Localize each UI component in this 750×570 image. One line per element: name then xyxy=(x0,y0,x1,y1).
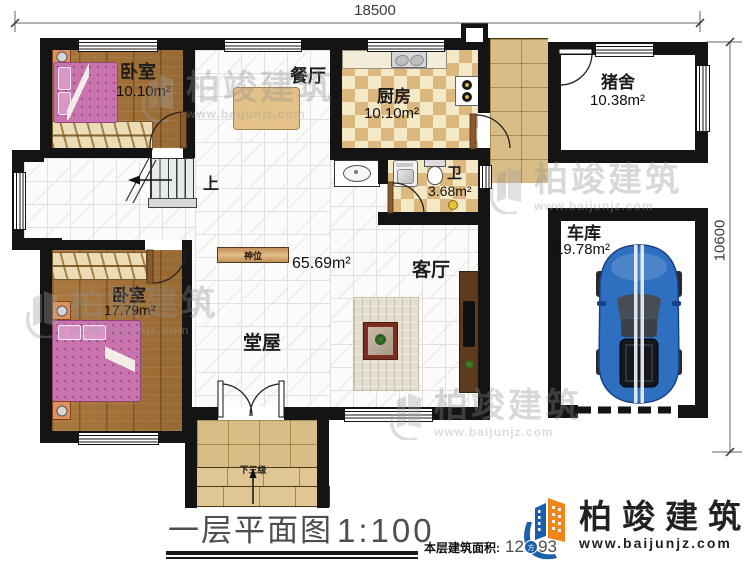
stove xyxy=(455,76,480,106)
shrine-cabinet: 神位 xyxy=(217,247,289,263)
bathroom-area: 3.68m² xyxy=(428,183,472,199)
bedroom2-nightstand-top xyxy=(52,301,71,320)
plant xyxy=(465,360,474,369)
car-top-view xyxy=(593,243,685,407)
tv-cabinet xyxy=(459,271,480,393)
dining-table xyxy=(233,87,300,130)
bedroom2-bed xyxy=(52,320,141,402)
toilet xyxy=(424,158,445,185)
window xyxy=(78,38,158,52)
wall xyxy=(182,407,218,420)
bedroom2-nightstand-bottom xyxy=(52,401,71,420)
wall xyxy=(678,405,708,418)
blanket-fold xyxy=(67,63,89,120)
basin-counter xyxy=(334,160,380,187)
floor-area-label: 本层建筑面积: xyxy=(424,539,500,556)
living-name: 客厅 xyxy=(412,255,450,282)
flue-column xyxy=(461,23,488,47)
wall xyxy=(378,212,490,225)
wall xyxy=(40,250,52,443)
tv xyxy=(463,301,475,347)
wall xyxy=(548,150,708,163)
title-underline-thin xyxy=(166,557,418,559)
brand-name: 柏竣建筑 xyxy=(579,499,750,535)
window xyxy=(12,172,26,230)
brand-block: 方 柏竣建筑 www.baijunjz.com xyxy=(522,490,750,560)
pigpen-name: 猪舍 xyxy=(601,68,635,93)
entry-platform xyxy=(197,420,317,467)
washing-machine xyxy=(393,160,418,187)
wall xyxy=(330,148,490,160)
window xyxy=(344,407,433,422)
bedroom2-wardrobe xyxy=(52,252,147,280)
entry-steps-label: 下三级 xyxy=(238,463,268,476)
wall xyxy=(548,208,561,418)
right-dimension-value: 10600 xyxy=(712,211,729,271)
wall xyxy=(548,405,578,418)
title-underline-thick xyxy=(166,551,418,555)
stairs-landing xyxy=(148,198,197,208)
kitchen-area: 10.10m² xyxy=(364,105,419,122)
bedroom1-bed xyxy=(53,62,118,123)
window xyxy=(367,38,445,52)
stairs-up-label: 上 xyxy=(203,170,219,194)
entry-wing-wall-right xyxy=(317,420,329,508)
side-corridor-paving xyxy=(490,38,548,183)
blanket-fold xyxy=(105,323,135,398)
hall-name: 堂屋 xyxy=(243,328,281,355)
kitchen-sink xyxy=(391,51,427,68)
wall xyxy=(330,38,342,160)
pillow xyxy=(83,325,106,340)
plan-title: 一层平面图 1:100 xyxy=(168,505,435,550)
entry-wing-wall-left xyxy=(185,420,197,508)
plan-scale: 1:100 xyxy=(337,512,435,550)
wall xyxy=(478,38,490,113)
shrine-label: 神位 xyxy=(244,249,262,262)
wall xyxy=(184,148,195,158)
stairs-treads xyxy=(150,158,194,201)
wall xyxy=(695,208,708,418)
bathroom-name: 卫 xyxy=(447,162,462,183)
window xyxy=(78,431,159,445)
wall xyxy=(548,42,561,163)
wall xyxy=(40,148,152,158)
window xyxy=(224,38,302,52)
window xyxy=(595,42,654,57)
kitchen-name: 厨房 xyxy=(377,82,411,107)
floor-plan-page: 神位 xyxy=(0,0,750,570)
bedroom1-wardrobe xyxy=(52,121,153,150)
window xyxy=(478,165,492,189)
window xyxy=(695,65,710,132)
brand-website: www.baijunjz.com xyxy=(579,535,750,551)
bathroom-fixture-knob xyxy=(448,200,458,210)
dining-name: 餐厅 xyxy=(290,62,326,88)
wall xyxy=(378,160,388,184)
brand-logo-icon: 方 xyxy=(522,490,572,560)
coffee-table xyxy=(363,322,398,360)
plan-title-text: 一层平面图 xyxy=(168,505,333,550)
pigpen-area: 10.38m² xyxy=(590,92,645,109)
wall xyxy=(284,407,344,420)
garage-area: 19.78m² xyxy=(555,241,610,258)
wall xyxy=(40,38,52,158)
wall xyxy=(40,240,145,250)
svg-text:方: 方 xyxy=(528,543,535,552)
entry-step-2 xyxy=(186,486,330,507)
wall xyxy=(183,38,195,158)
bedroom1-area: 10.10m² xyxy=(116,83,171,100)
top-dimension-value: 18500 xyxy=(330,2,420,19)
bedroom1-name: 卧室 xyxy=(120,58,156,84)
bedroom2-area: 17.79m² xyxy=(104,302,155,318)
pillow xyxy=(58,325,81,340)
hall-living-area: 65.69m² xyxy=(292,255,351,273)
